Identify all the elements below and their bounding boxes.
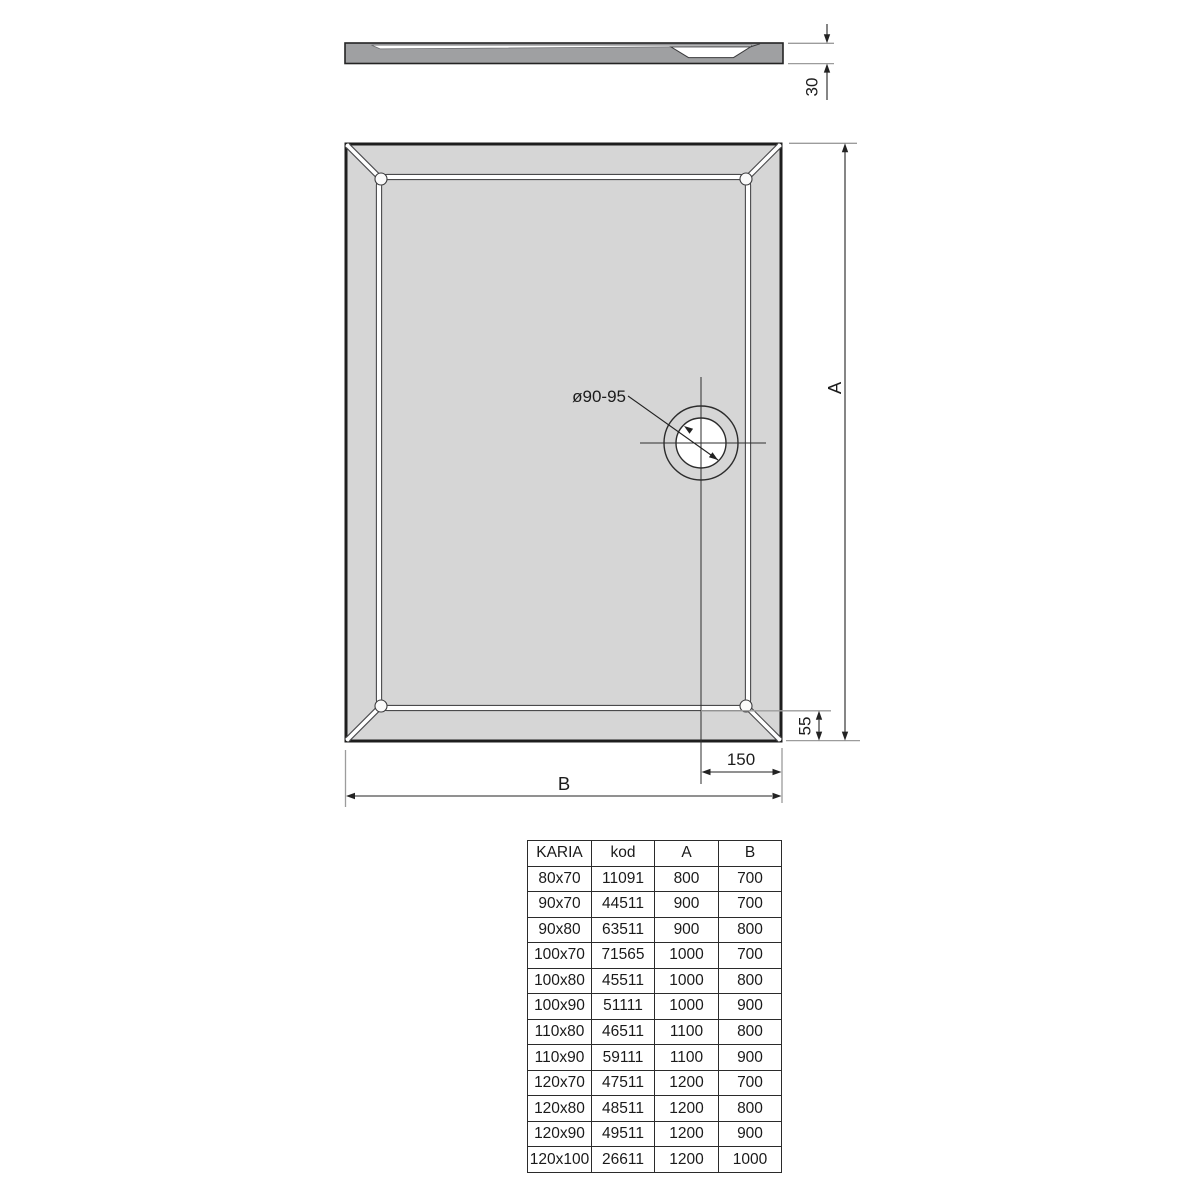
table-header-b: B (719, 841, 782, 867)
table-cell: 110x90 (528, 1045, 592, 1071)
table-cell: 110x80 (528, 1019, 592, 1045)
table-row: 110x90591111100900 (528, 1045, 782, 1071)
arrow-down-icon (824, 34, 830, 43)
table-cell: 1200 (655, 1096, 719, 1122)
table-row: 100x90511111000900 (528, 994, 782, 1020)
table-header-row: KARIA kod A B (528, 841, 782, 867)
table-cell: 800 (719, 917, 782, 943)
table-cell: 90x80 (528, 917, 592, 943)
size-table-body: KARIA kod A B 80x701109180070090x7044511… (528, 841, 782, 1173)
table-cell: 100x70 (528, 943, 592, 969)
arrow-left-icon (346, 793, 355, 799)
table-cell: 1000 (655, 943, 719, 969)
table-row: 80x7011091800700 (528, 866, 782, 892)
table-row: 100x70715651000700 (528, 943, 782, 969)
table-cell: 120x80 (528, 1096, 592, 1122)
table-row: 90x8063511900800 (528, 917, 782, 943)
table-cell: 900 (655, 917, 719, 943)
table-cell: 700 (719, 1070, 782, 1096)
table-cell: 1000 (655, 968, 719, 994)
table-row: 120x90495111200900 (528, 1121, 782, 1147)
table-cell: 900 (719, 1045, 782, 1071)
table-cell: 1100 (655, 1019, 719, 1045)
table-cell: 26611 (592, 1147, 655, 1173)
table-cell: 63511 (592, 917, 655, 943)
table-cell: 800 (719, 968, 782, 994)
dim-30: 30 (788, 24, 834, 100)
table-cell: 1100 (655, 1045, 719, 1071)
table-cell: 47511 (592, 1070, 655, 1096)
table-header-kod: kod (592, 841, 655, 867)
table-cell: 51111 (592, 994, 655, 1020)
karia-size-table: KARIA kod A B 80x701109180070090x7044511… (527, 840, 782, 1173)
table-cell: 11091 (592, 866, 655, 892)
dim-b-label: B (558, 773, 570, 794)
table-row: 90x7044511900700 (528, 892, 782, 918)
table-cell: 700 (719, 943, 782, 969)
table-cell: 800 (719, 1019, 782, 1045)
table-cell: 700 (719, 866, 782, 892)
plan-view: ø90-95 A 55 (346, 143, 861, 807)
table-cell: 800 (655, 866, 719, 892)
arrow-up-icon (824, 64, 830, 73)
table-cell: 45511 (592, 968, 655, 994)
table-cell: 80x70 (528, 866, 592, 892)
table-cell: 49511 (592, 1121, 655, 1147)
dim-a-label: A (824, 381, 845, 394)
table-cell: 48511 (592, 1096, 655, 1122)
table-cell: 900 (655, 892, 719, 918)
side-section-view: 30 (345, 24, 834, 100)
table-header-a: A (655, 841, 719, 867)
table-cell: 120x90 (528, 1121, 592, 1147)
dim-b: B (346, 750, 782, 807)
table-row: 120x1002661112001000 (528, 1147, 782, 1173)
technical-drawing: 30 (0, 0, 1200, 830)
dim-30-label: 30 (802, 78, 821, 97)
drain-diameter-label: ø90-95 (572, 387, 626, 406)
table-cell: 1200 (655, 1121, 719, 1147)
arrow-right-icon (773, 793, 782, 799)
table-cell: 1000 (655, 994, 719, 1020)
table-cell: 800 (719, 1096, 782, 1122)
table-row: 100x80455111000800 (528, 968, 782, 994)
table-row: 110x80465111100800 (528, 1019, 782, 1045)
table-cell: 100x80 (528, 968, 592, 994)
table-cell: 1000 (719, 1147, 782, 1173)
table-cell: 700 (719, 892, 782, 918)
arrow-right-icon (773, 769, 782, 775)
karia-shower-tray-drawing: 30 (0, 0, 1200, 1200)
table-row: 120x70475111200700 (528, 1070, 782, 1096)
table-cell: 1200 (655, 1147, 719, 1173)
arrow-down-icon (842, 732, 848, 741)
table-cell: 71565 (592, 943, 655, 969)
table-cell: 90x70 (528, 892, 592, 918)
arrow-down-icon (816, 732, 822, 741)
dim-a: A (786, 143, 860, 740)
table-cell: 44511 (592, 892, 655, 918)
arrow-left-icon (702, 769, 711, 775)
table-cell: 120x70 (528, 1070, 592, 1096)
arrow-up-icon (816, 711, 822, 720)
table-cell: 1200 (655, 1070, 719, 1096)
table-cell: 59111 (592, 1045, 655, 1071)
dim-150: 150 (702, 748, 783, 803)
table-row: 120x80485111200800 (528, 1096, 782, 1122)
dim-150-label: 150 (727, 750, 755, 769)
arrow-up-icon (842, 143, 848, 152)
table-cell: 46511 (592, 1019, 655, 1045)
dim-55-label: 55 (795, 717, 814, 736)
table-header-karia: KARIA (528, 841, 592, 867)
table-cell: 900 (719, 994, 782, 1020)
table-cell: 100x90 (528, 994, 592, 1020)
table-cell: 900 (719, 1121, 782, 1147)
table-cell: 120x100 (528, 1147, 592, 1173)
